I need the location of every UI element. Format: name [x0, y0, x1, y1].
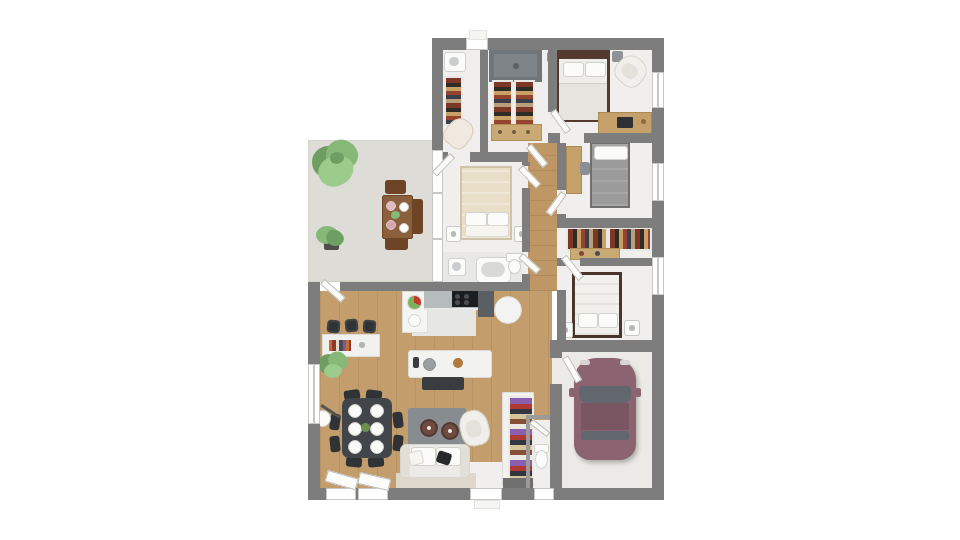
car-roof: [581, 403, 629, 430]
car-mirror: [635, 388, 641, 397]
outdoor-table: [382, 195, 413, 239]
wall-garage-left-b: [550, 384, 562, 488]
potted-plant-icon: [316, 226, 346, 256]
bedroom4-bed: [460, 166, 512, 240]
wall-left-upper: [432, 38, 443, 150]
wall-master-left-a: [548, 50, 557, 112]
dining-chair: [392, 411, 404, 428]
wall-terrace-edge-a: [308, 282, 318, 291]
island-sink: [423, 358, 436, 371]
cooktop: [452, 291, 478, 307]
wall-garage-top: [550, 340, 664, 352]
window-dining-1: [326, 488, 356, 500]
fruit-bowl-icon: [407, 295, 422, 310]
wall-garage-left-a: [550, 352, 562, 358]
kitchen-round-table: [494, 296, 522, 324]
kitchen-island: [408, 350, 492, 378]
living-plant-icon: [318, 352, 348, 382]
entry-bookshelf: [508, 396, 534, 484]
window-master: [652, 72, 664, 108]
front-door-step: [474, 500, 500, 509]
wall-upper-left-bottom-b: [470, 152, 528, 162]
pouf: [441, 422, 459, 440]
car: [574, 358, 636, 460]
wall-laundry-closet: [480, 50, 488, 152]
bar-stool: [344, 318, 358, 332]
bedroom2-bed: [590, 142, 630, 208]
wall-hall-left-c: [522, 274, 530, 291]
dining-chair: [346, 456, 363, 467]
car-mirror: [569, 388, 575, 397]
wall-hall-left-b: [522, 188, 530, 252]
pouf: [420, 419, 438, 437]
wall-bedroom2-left-a: [557, 143, 566, 190]
closet-rack-1: [492, 80, 513, 128]
window-bedroom2: [652, 163, 664, 201]
wall-bedroom2-bottom: [557, 218, 664, 228]
bedroom3-bed: [572, 272, 622, 338]
outdoor-dining-set: [378, 180, 428, 252]
car-headlight: [620, 360, 630, 365]
floor-plan: [0, 0, 960, 540]
outdoor-chair: [385, 180, 406, 194]
tree-icon: [310, 140, 362, 190]
front-door: [470, 488, 502, 500]
bar-stool: [326, 319, 340, 333]
car-windshield: [579, 386, 631, 403]
dining-table: [342, 398, 392, 458]
wall-kitchen-top: [434, 282, 528, 291]
kitchen-bench: [422, 377, 464, 390]
back-door-step: [469, 30, 487, 40]
bar-stool: [363, 320, 377, 334]
window-living-left: [308, 364, 320, 424]
bedroom4-nightstand-left: [446, 226, 461, 242]
wc-wall-left: [526, 418, 530, 488]
bedroom2-chair: [580, 162, 590, 175]
bathroom-washbasin: [448, 258, 466, 276]
laundry-washbasin: [444, 52, 466, 72]
closet-dresser: [491, 124, 542, 141]
wall-terrace-edge-b: [340, 282, 434, 291]
wall-bedroom3-left-b: [557, 290, 566, 340]
wc-toilet: [534, 444, 548, 468]
car-rear-window: [581, 431, 629, 440]
window-bedroom3: [652, 257, 664, 295]
dining-chair: [329, 436, 341, 453]
bedroom3-nightstand-right: [624, 320, 640, 336]
wall-master-bottom-a: [548, 133, 560, 143]
closet-rack-2: [514, 80, 535, 128]
wall-master-bottom-b: [584, 133, 664, 143]
sofa: [400, 444, 470, 478]
master-desk: [598, 112, 652, 134]
window-entry-side: [534, 488, 554, 500]
closet-shower: [489, 50, 542, 82]
car-headlight: [580, 360, 590, 365]
kitchen-tall-unit: [478, 291, 494, 317]
laptop-icon: [617, 117, 633, 128]
